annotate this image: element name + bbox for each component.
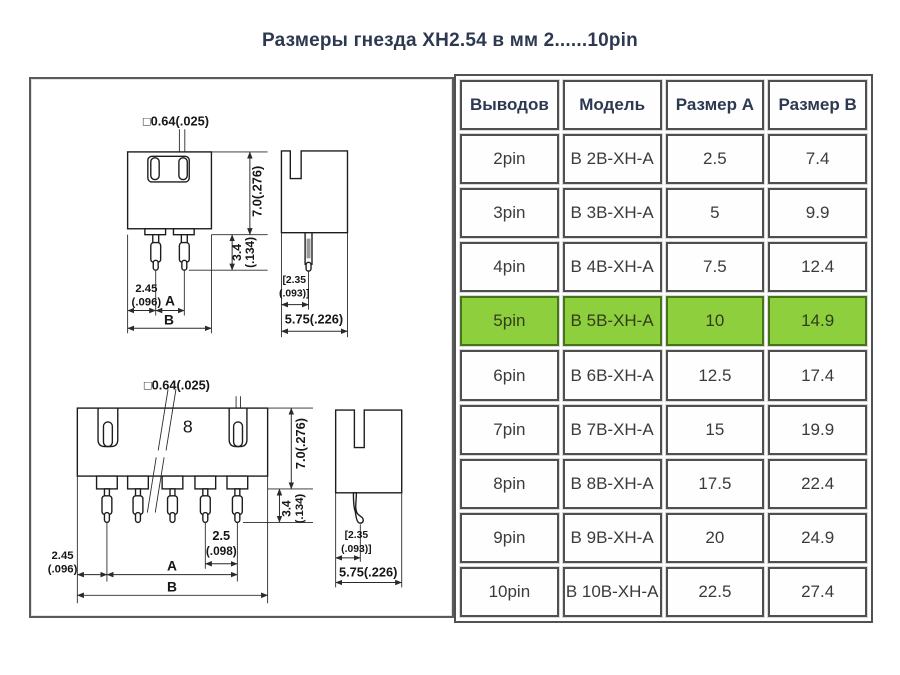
dim-protrusion-inch: (.134) xyxy=(294,494,306,524)
cell-size-a: 5 xyxy=(666,188,765,238)
header-pins: Выводов xyxy=(460,80,559,130)
table-row: 9pin B 9B-XH-A 20 24.9 xyxy=(460,513,867,563)
table-header-row: Выводов Модель Размер A Размер B xyxy=(460,80,867,130)
cell-pins: 8pin xyxy=(460,459,559,509)
cell-size-b: 9.9 xyxy=(768,188,867,238)
cell-size-a: 22.5 xyxy=(666,567,765,617)
cell-pins: 6pin xyxy=(460,350,559,400)
cell-model: B 7B-XH-A xyxy=(563,405,662,455)
pin-count-label: 8 xyxy=(183,417,193,437)
dim-pin-size: □0.64(.025) xyxy=(144,377,210,392)
cell-size-a: 10 xyxy=(666,296,765,346)
dim-pitch: 2.5 xyxy=(212,528,230,543)
cell-model: B 10B-XH-A xyxy=(563,567,662,617)
cell-size-a: 12.5 xyxy=(666,350,765,400)
dim-protrusion: 3.4 xyxy=(279,500,293,517)
cell-size-b: 14.9 xyxy=(768,296,867,346)
cell-pins: 3pin xyxy=(460,188,559,238)
cell-size-b: 19.9 xyxy=(768,405,867,455)
dim-offset-inch: (.093)] xyxy=(279,289,309,300)
cell-model: B 3B-XH-A xyxy=(563,188,662,238)
dim-offset: [2.35 xyxy=(345,530,369,541)
side-view-top: [2.35 (.093)] 5.75(.226) xyxy=(279,151,347,337)
header-size-b: Размер B xyxy=(768,80,867,130)
dim-b-label: B xyxy=(167,579,177,594)
cell-pins: 10pin xyxy=(460,567,559,617)
table-row: 7pin B 7B-XH-A 15 19.9 xyxy=(460,405,867,455)
dim-edge-offset: 2.45 xyxy=(52,550,74,562)
cell-size-b: 22.4 xyxy=(768,459,867,509)
pin-row xyxy=(97,476,248,522)
dim-protrusion-inch: (.134) xyxy=(243,237,257,268)
dim-pitch-inch: (.098) xyxy=(206,544,237,558)
dim-a-label: A xyxy=(165,294,175,309)
table-row: 10pin B 10B-XH-A 22.5 27.4 xyxy=(460,567,867,617)
table-row: 4pin B 4B-XH-A 7.5 12.4 xyxy=(460,242,867,292)
pin xyxy=(151,235,161,270)
cell-size-a: 2.5 xyxy=(666,134,765,184)
spec-table: Выводов Модель Размер A Размер B 2pin B … xyxy=(454,74,873,623)
header-size-a: Размер A xyxy=(666,80,765,130)
table-row: 3pin B 3B-XH-A 5 9.9 xyxy=(460,188,867,238)
cell-model: B 5B-XH-A xyxy=(563,296,662,346)
dim-pin-size: □0.64(.025) xyxy=(143,113,209,128)
cell-size-a: 17.5 xyxy=(666,459,765,509)
side-view-bottom: [2.35 (.093)] 5.75(.226) xyxy=(336,410,402,587)
cell-model: B 4B-XH-A xyxy=(563,242,662,292)
cell-pins: 9pin xyxy=(460,513,559,563)
cell-model: B 8B-XH-A xyxy=(563,459,662,509)
cell-model: B 2B-XH-A xyxy=(563,134,662,184)
table-row: 6pin B 6B-XH-A 12.5 17.4 xyxy=(460,350,867,400)
dim-a-label: A xyxy=(167,559,177,574)
table-row: 5pin B 5B-XH-A 10 14.9 xyxy=(460,296,867,346)
dim-b-label: B xyxy=(164,312,174,327)
front-view-npin: □0.64(.025) 8 7.0(.276) 3.4 (.134) 2.5 (… xyxy=(48,377,313,603)
cell-pins: 5pin xyxy=(460,296,559,346)
cell-model: B 6B-XH-A xyxy=(563,350,662,400)
cell-pins: 2pin xyxy=(460,134,559,184)
table-row: 2pin B 2B-XH-A 2.5 7.4 xyxy=(460,134,867,184)
page-title: Размеры гнезда XH2.54 в мм 2......10pin xyxy=(0,30,900,52)
cell-size-b: 27.4 xyxy=(768,567,867,617)
dim-edge-offset: 2.45 xyxy=(135,283,157,295)
cell-model: B 9B-XH-A xyxy=(563,513,662,563)
dim-height: 7.0(.276) xyxy=(250,166,265,217)
cell-size-b: 12.4 xyxy=(768,242,867,292)
technical-drawing: □0.64(.025) 7.0(.276) 3.4 (.134) 2.45 (.… xyxy=(31,79,452,616)
dim-depth: 5.75(.226) xyxy=(285,311,343,326)
dim-edge-offset-inch: (.096) xyxy=(48,564,78,576)
dim-offset-inch: (.093)] xyxy=(341,544,371,555)
dim-height: 7.0(.276) xyxy=(293,418,308,469)
pin xyxy=(179,235,189,270)
front-view-2pin: □0.64(.025) 7.0(.276) 3.4 (.134) 2.45 (.… xyxy=(128,113,268,333)
dim-offset: [2.35 xyxy=(282,275,306,286)
cell-size-a: 7.5 xyxy=(666,242,765,292)
dim-edge-offset-inch: (.096) xyxy=(132,297,162,309)
cell-size-b: 7.4 xyxy=(768,134,867,184)
cell-size-b: 17.4 xyxy=(768,350,867,400)
cell-pins: 7pin xyxy=(460,405,559,455)
dim-depth: 5.75(.226) xyxy=(339,565,397,580)
cell-pins: 4pin xyxy=(460,242,559,292)
cell-size-a: 20 xyxy=(666,513,765,563)
table-row: 8pin B 8B-XH-A 17.5 22.4 xyxy=(460,459,867,509)
drawing-panel: □0.64(.025) 7.0(.276) 3.4 (.134) 2.45 (.… xyxy=(29,77,454,618)
main-content: □0.64(.025) 7.0(.276) 3.4 (.134) 2.45 (.… xyxy=(29,74,873,623)
cell-size-b: 24.9 xyxy=(768,513,867,563)
cell-size-a: 15 xyxy=(666,405,765,455)
header-model: Модель xyxy=(563,80,662,130)
